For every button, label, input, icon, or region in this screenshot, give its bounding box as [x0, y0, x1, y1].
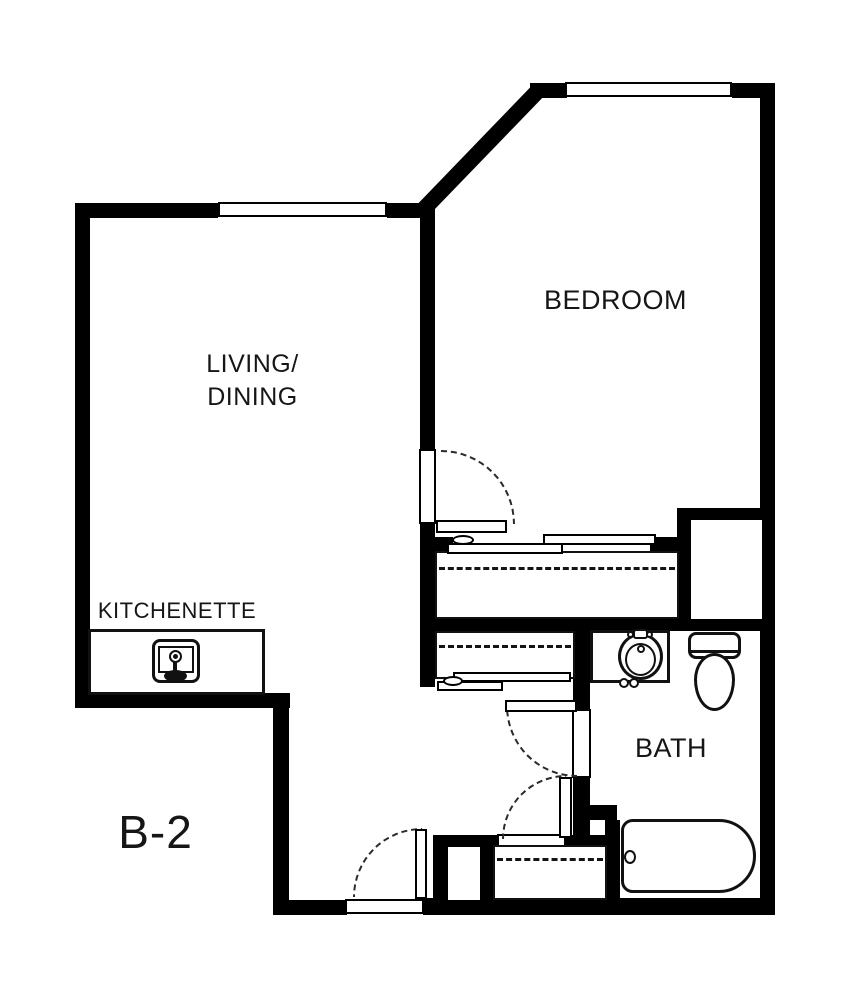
toilet-bowl-icon [694, 653, 735, 711]
opening-bedroom-door [419, 449, 436, 524]
bathtub-icon [621, 819, 756, 893]
closet-entry [493, 845, 607, 900]
wall-living-bottom [75, 693, 290, 708]
closet-rod-line [439, 645, 571, 648]
wall-bottom-right [423, 898, 775, 915]
closet-rod-line [439, 567, 675, 570]
room-label-living-dining: LIVING/ DINING [170, 348, 335, 413]
living-label-line2: DINING [170, 381, 335, 414]
closet-bedroom [435, 551, 679, 619]
wall-tub-jog [573, 805, 617, 820]
bath-faucet-knob-right [646, 631, 653, 638]
wall-hall-bath-upper [573, 631, 590, 710]
wall-angled-bedroom [415, 84, 545, 217]
vanity-supply-line [629, 678, 639, 688]
wall-closets-bottom [420, 617, 775, 631]
wall-entry-closet-left [433, 835, 448, 900]
wall-entry-closet-right [478, 847, 493, 900]
wall-entry-step [273, 693, 289, 915]
door-leaf-entry [415, 829, 427, 899]
door-leaf-bath [505, 700, 577, 712]
room-label-bath: BATH [612, 731, 730, 766]
room-label-bedroom: BEDROOM [533, 283, 698, 318]
vanity-supply-line [619, 678, 629, 688]
bath-sink-drain [637, 645, 645, 653]
floorplan-b2: LIVING/ DINING BEDROOM KITCHENETTE BATH … [0, 0, 849, 998]
kitchen-faucet-dot [173, 654, 178, 659]
opening-entry-door [345, 899, 424, 914]
wall-top-left [75, 203, 218, 218]
wall-right [760, 83, 775, 915]
room-label-kitchenette: KITCHENETTE [93, 597, 261, 626]
living-label-line1: LIVING/ [170, 348, 335, 381]
wall-bedroom-top-left [530, 83, 567, 98]
window-living [218, 202, 387, 217]
closet-rod-line [497, 858, 603, 861]
wall-living-bedroom-upper [420, 203, 435, 450]
sliding-door-handle [452, 535, 474, 545]
closet-utility [691, 520, 762, 619]
bathtub-drain [624, 850, 636, 864]
sliding-door-handle [443, 676, 463, 686]
bath-faucet-knob-left [627, 631, 634, 638]
wall-tub-left [605, 820, 620, 915]
closet-entry-small [448, 847, 480, 900]
unit-label: B-2 [108, 803, 203, 863]
kitchen-faucet-base [164, 670, 187, 682]
door-leaf-hall [559, 777, 572, 838]
wall-bottom-left [273, 900, 347, 915]
window-bedroom [565, 82, 732, 97]
door-leaf-bedroom [436, 520, 507, 533]
